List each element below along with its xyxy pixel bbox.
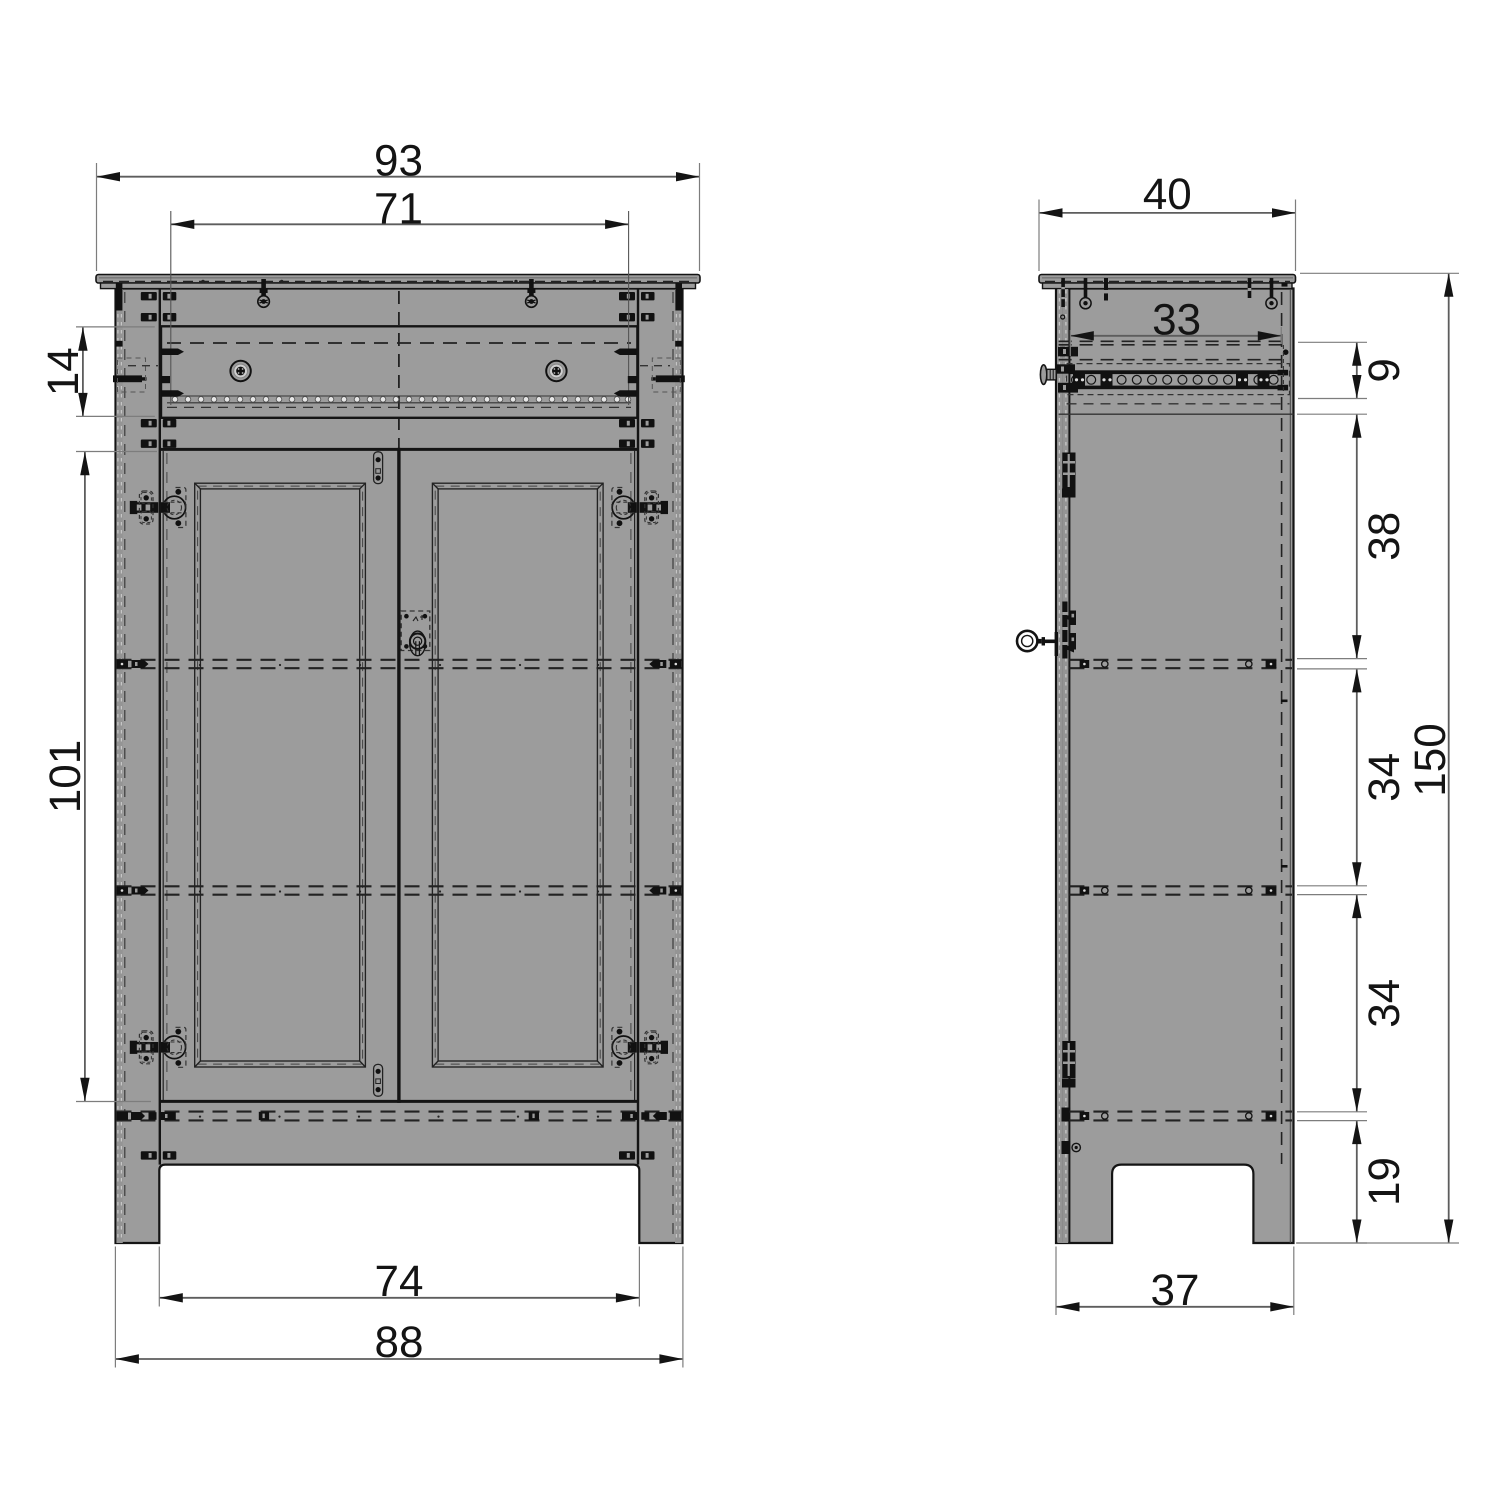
svg-text:19: 19 bbox=[1360, 1157, 1409, 1206]
svg-text:93: 93 bbox=[374, 137, 423, 186]
svg-text:101: 101 bbox=[41, 740, 90, 813]
svg-text:14: 14 bbox=[39, 347, 88, 396]
svg-text:37: 37 bbox=[1151, 1266, 1200, 1315]
svg-text:34: 34 bbox=[1360, 979, 1409, 1028]
svg-text:71: 71 bbox=[374, 185, 423, 234]
svg-text:33: 33 bbox=[1152, 296, 1201, 345]
svg-text:150: 150 bbox=[1406, 723, 1455, 796]
svg-text:9: 9 bbox=[1360, 358, 1409, 382]
svg-text:74: 74 bbox=[375, 1257, 424, 1306]
svg-text:40: 40 bbox=[1143, 170, 1192, 219]
svg-text:38: 38 bbox=[1360, 512, 1409, 561]
svg-text:34: 34 bbox=[1360, 753, 1409, 802]
svg-text:88: 88 bbox=[375, 1318, 424, 1367]
